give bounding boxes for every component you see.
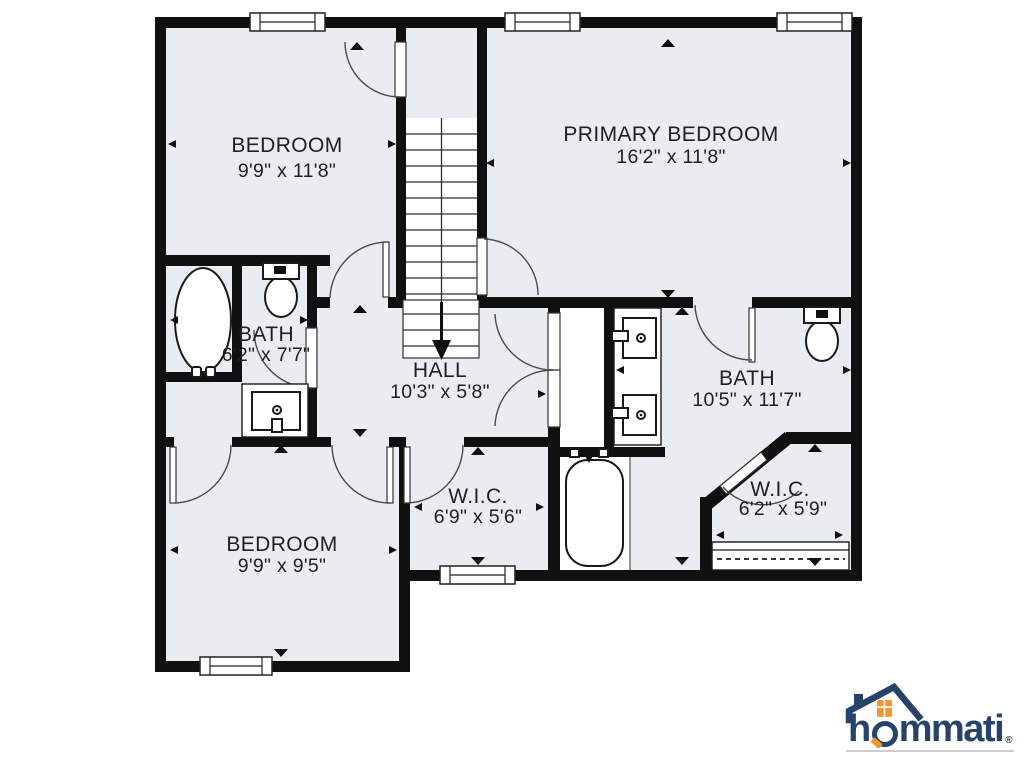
window xyxy=(200,657,272,675)
registered-trademark: ® xyxy=(1005,736,1012,746)
window xyxy=(250,13,325,31)
room-dims-bath-left: 6'2" x 7'7" xyxy=(222,344,311,366)
room-label-bath-right: BATH xyxy=(719,367,775,390)
room-label-primary-bedroom: PRIMARY BEDROOM xyxy=(563,123,778,146)
room-dims-primary-bedroom: 16'2" x 11'8" xyxy=(616,146,725,168)
bathtub-icon xyxy=(566,449,623,566)
room-label-hall: HALL xyxy=(413,359,467,382)
toilet-icon xyxy=(804,307,840,361)
room-label-bedroom-top-left: BEDROOM xyxy=(231,134,342,157)
floor-plan: BEDROOM 9'9" x 11'8" PRIMARY BEDROOM 16'… xyxy=(0,0,1024,768)
room-label-wic-middle: W.I.C. xyxy=(448,485,508,508)
room-dims-bath-right: 10'5" x 11'7" xyxy=(692,389,801,411)
hommati-logo: h mmati ® xyxy=(840,674,1018,758)
room-dims-wic-right: 6'2" x 5'9" xyxy=(739,498,828,520)
sink-vanity-icon xyxy=(242,384,308,437)
logo-text-mmati: mmati xyxy=(899,710,1003,748)
closet-rod-icon xyxy=(712,542,849,570)
toilet-icon xyxy=(263,263,299,317)
logo-underline xyxy=(846,750,1014,752)
room-dims-wic-middle: 6'9" x 5'6" xyxy=(434,506,523,528)
window xyxy=(505,13,580,31)
room-dims-bedroom-top-left: 9'9" x 11'8" xyxy=(238,160,336,182)
linen-closet-floor xyxy=(560,307,604,447)
window xyxy=(440,566,515,584)
logo-wordmark: h mmati ® xyxy=(848,710,1013,748)
magnifier-o-icon xyxy=(872,721,898,747)
double-vanity-icon xyxy=(612,308,661,445)
room-dims-bedroom-bottom-left: 9'9" x 9'5" xyxy=(238,555,327,577)
logo-text-h: h xyxy=(848,710,870,748)
room-dims-hall: 10'3" x 5'8" xyxy=(390,381,490,403)
window xyxy=(777,13,852,31)
room-label-bedroom-bottom-left: BEDROOM xyxy=(226,533,337,556)
room-label-bath-left: BATH xyxy=(238,323,294,346)
